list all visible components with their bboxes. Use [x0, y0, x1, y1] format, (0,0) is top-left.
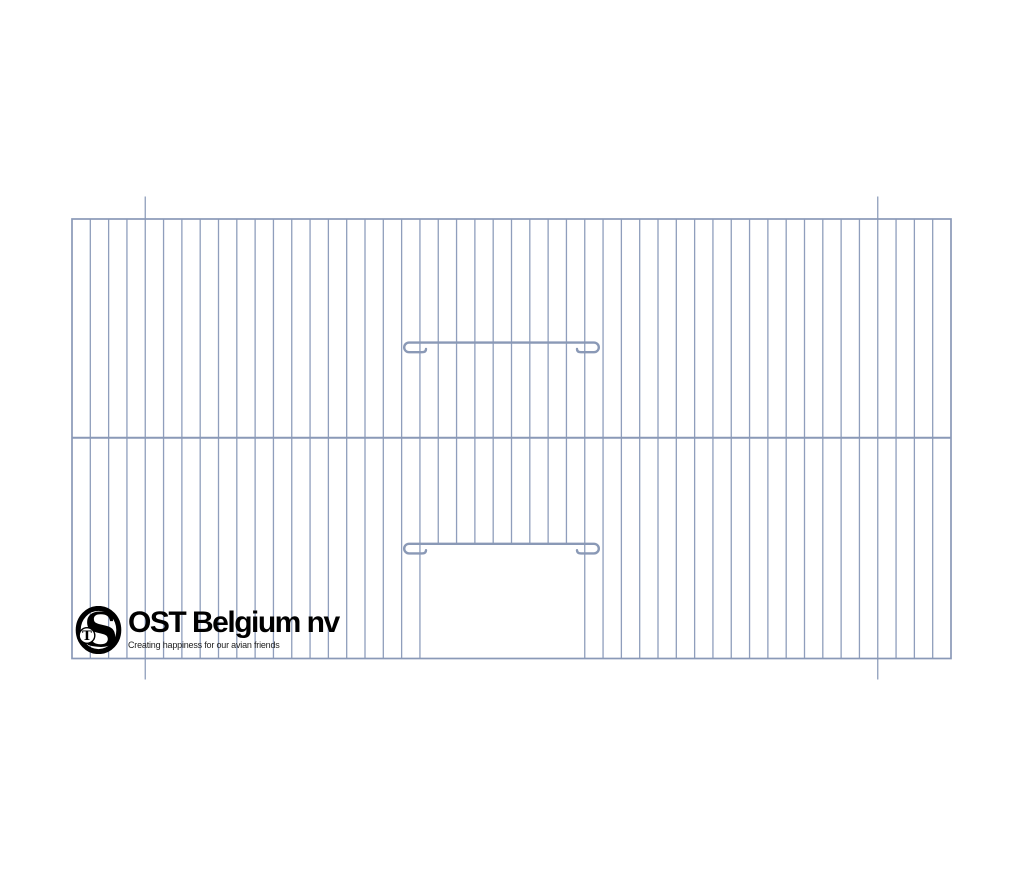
door-slider-bar	[404, 544, 599, 554]
ost-monogram-icon: S T	[75, 606, 123, 654]
company-name: OST Belgium nv	[128, 608, 339, 638]
brand-text-block: OST Belgium nv Creating happiness for ou…	[128, 606, 339, 650]
company-tagline: Creating happiness for our avian friends	[128, 641, 339, 650]
product-image: S T OST Belgium nv Creating happiness fo…	[0, 0, 1024, 878]
brand-logo: S T OST Belgium nv Creating happiness fo…	[75, 606, 339, 654]
door-slider-bar	[404, 343, 599, 353]
cage-front-drawing	[0, 0, 1024, 878]
door-slider-bars	[404, 343, 599, 554]
monogram-letter-t: T	[82, 629, 92, 644]
